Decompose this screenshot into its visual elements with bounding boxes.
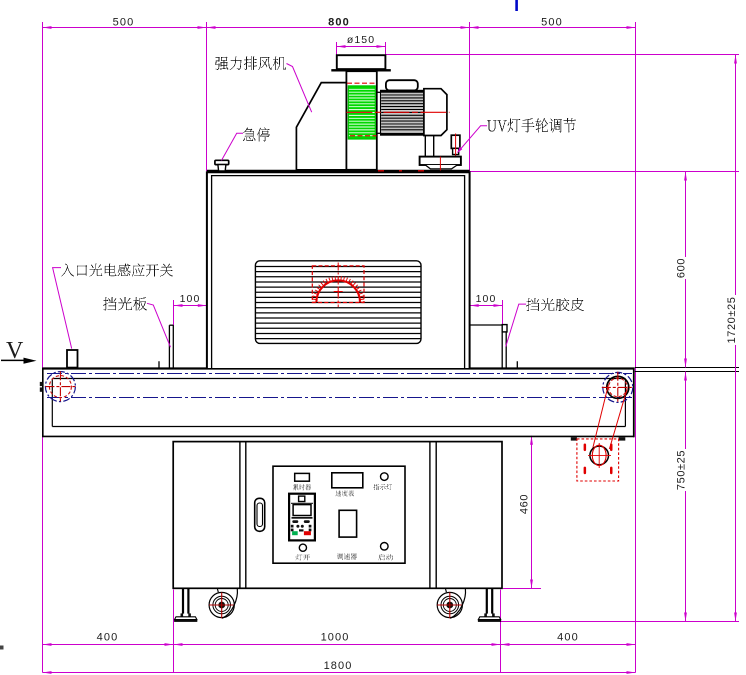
- svg-text:500: 500: [113, 17, 135, 29]
- svg-text:460: 460: [519, 494, 531, 514]
- svg-text:500: 500: [541, 17, 563, 29]
- svg-text:1800: 1800: [324, 660, 353, 672]
- svg-text:ø150: ø150: [347, 34, 375, 46]
- svg-text:1000: 1000: [321, 632, 350, 644]
- svg-text:750±25: 750±25: [676, 450, 688, 490]
- svg-text:1720±25: 1720±25: [726, 297, 738, 344]
- svg-text:100: 100: [476, 293, 497, 305]
- svg-text:600: 600: [676, 258, 688, 278]
- svg-text:100: 100: [180, 293, 201, 305]
- svg-text:400: 400: [97, 632, 119, 644]
- svg-text:400: 400: [557, 632, 579, 644]
- svg-text:800: 800: [328, 17, 350, 29]
